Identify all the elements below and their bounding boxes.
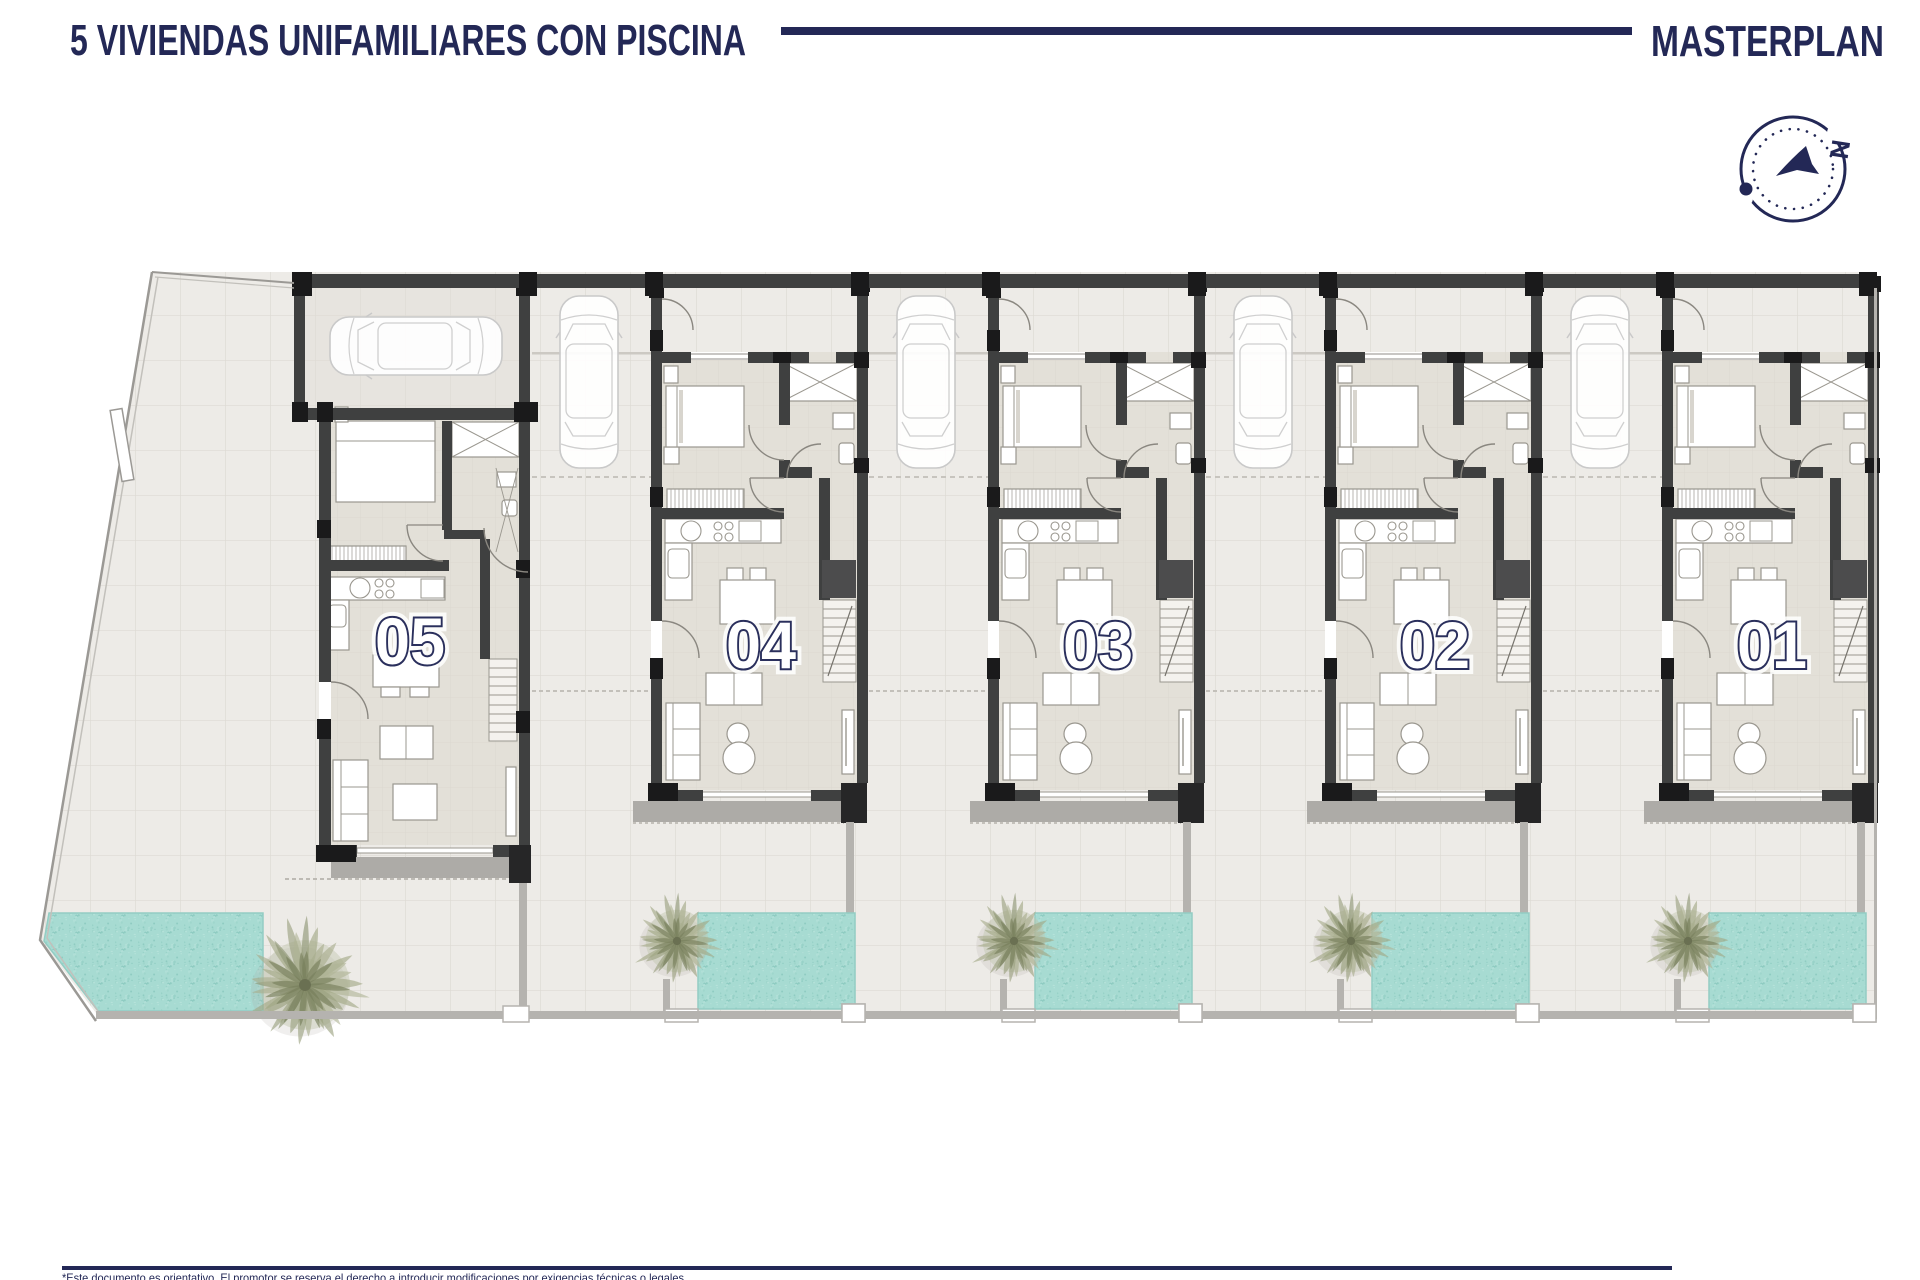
svg-text:5 VIVIENDAS UNIFAMILIARES CON: 5 VIVIENDAS UNIFAMILIARES CON PISCINA bbox=[70, 16, 746, 65]
svg-text:03: 03 bbox=[1063, 608, 1133, 682]
svg-text:04: 04 bbox=[726, 608, 796, 682]
svg-text:01: 01 bbox=[1737, 608, 1807, 682]
svg-text:05: 05 bbox=[375, 604, 445, 678]
svg-text:MASTERPLAN: MASTERPLAN bbox=[1651, 17, 1884, 66]
svg-text:*Este documento es orientativo: *Este documento es orientativo. El promo… bbox=[62, 1271, 687, 1280]
svg-text:02: 02 bbox=[1400, 608, 1470, 682]
